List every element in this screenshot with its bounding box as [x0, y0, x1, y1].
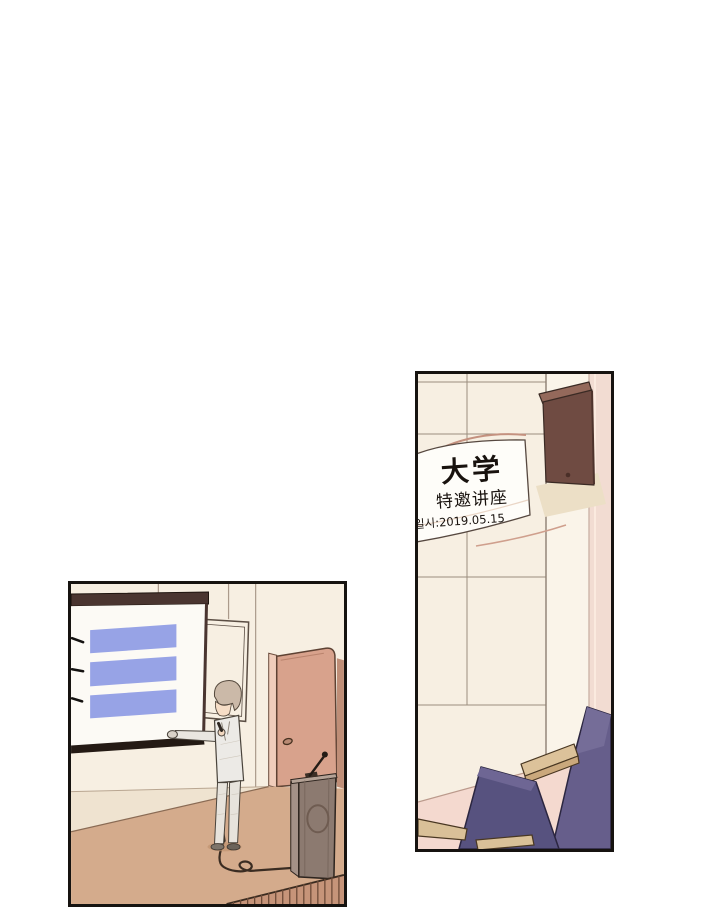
banner-title: 大学 — [440, 452, 504, 489]
comic-page: { "page": { "width": 720, "height": 912,… — [0, 0, 720, 912]
door — [269, 648, 344, 789]
panel-wall-art: 大学 特邀讲座 일시:2019.05.15 — [418, 374, 611, 849]
presenter-shoe — [211, 844, 224, 850]
slide-bars — [90, 624, 176, 718]
panel-stage-art — [71, 584, 344, 904]
door-shadow-strip — [337, 658, 344, 788]
projection-screen — [71, 592, 208, 754]
panel-lecture-hall-wall: 大学 特邀讲座 일시:2019.05.15 — [415, 371, 614, 852]
presenter-shoe — [227, 844, 240, 850]
podium — [291, 774, 337, 879]
door-slab — [277, 648, 337, 787]
door-frame — [269, 653, 277, 787]
panel-presentation-stage — [68, 581, 347, 907]
wall-speaker — [539, 382, 594, 485]
screen-top-frame — [71, 592, 208, 606]
presenter-hand — [167, 731, 177, 739]
